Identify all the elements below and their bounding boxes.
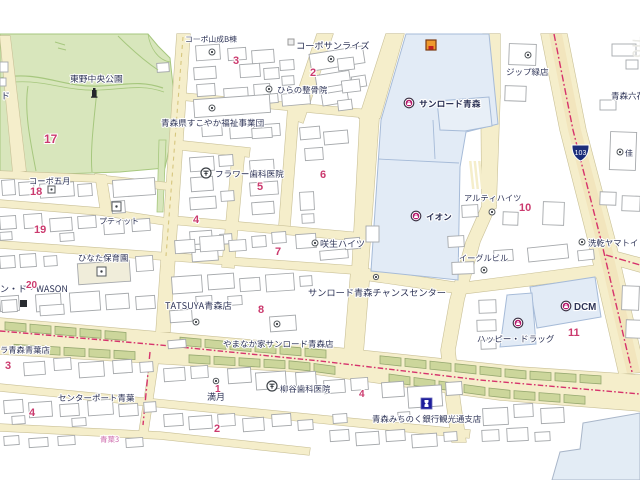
svg-text:11: 11 — [568, 327, 580, 339]
svg-text:103: 103 — [575, 150, 587, 157]
svg-text:18: 18 — [30, 186, 42, 198]
svg-text:17: 17 — [44, 132, 58, 146]
svg-text:20: 20 — [26, 280, 38, 291]
svg-text:2: 2 — [214, 423, 220, 435]
svg-text:7: 7 — [275, 246, 281, 258]
svg-text:8: 8 — [258, 304, 264, 316]
svg-text:1: 1 — [215, 384, 221, 395]
svg-text:3: 3 — [5, 360, 11, 372]
svg-text:10: 10 — [519, 202, 531, 214]
svg-text:2: 2 — [310, 67, 316, 79]
svg-text:5: 5 — [257, 181, 263, 193]
svg-text:3: 3 — [233, 55, 239, 67]
svg-text:4: 4 — [359, 389, 365, 400]
svg-text:6: 6 — [320, 169, 326, 181]
svg-text:19: 19 — [34, 224, 46, 236]
svg-text:4: 4 — [193, 214, 200, 226]
svg-text:DCM: DCM — [574, 302, 596, 313]
svg-text:4: 4 — [29, 407, 36, 419]
